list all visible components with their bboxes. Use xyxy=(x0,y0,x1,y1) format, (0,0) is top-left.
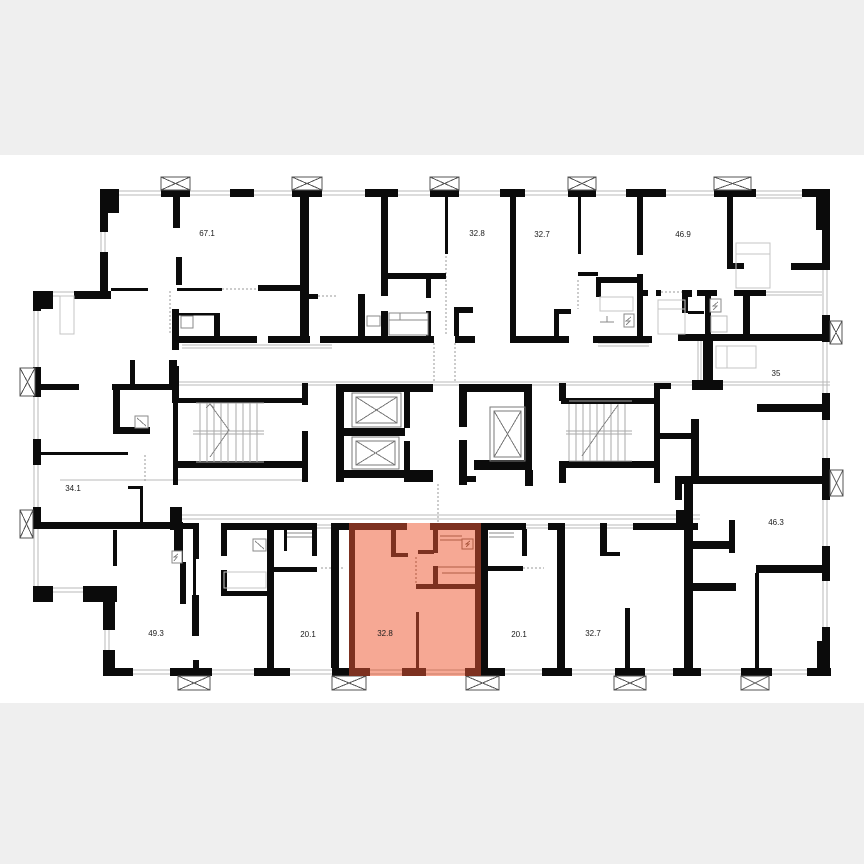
svg-text:46.3: 46.3 xyxy=(768,518,784,527)
svg-text:20.1: 20.1 xyxy=(511,630,527,639)
svg-text:32.8: 32.8 xyxy=(377,629,393,638)
svg-text:20.1: 20.1 xyxy=(300,630,316,639)
svg-text:34.1: 34.1 xyxy=(65,484,81,493)
svg-text:32.7: 32.7 xyxy=(585,629,601,638)
svg-text:32.7: 32.7 xyxy=(534,230,550,239)
svg-text:46.9: 46.9 xyxy=(675,230,691,239)
svg-text:35: 35 xyxy=(772,369,781,378)
svg-text:67.1: 67.1 xyxy=(199,229,215,238)
svg-text:49.3: 49.3 xyxy=(148,629,164,638)
svg-text:32.8: 32.8 xyxy=(469,229,485,238)
